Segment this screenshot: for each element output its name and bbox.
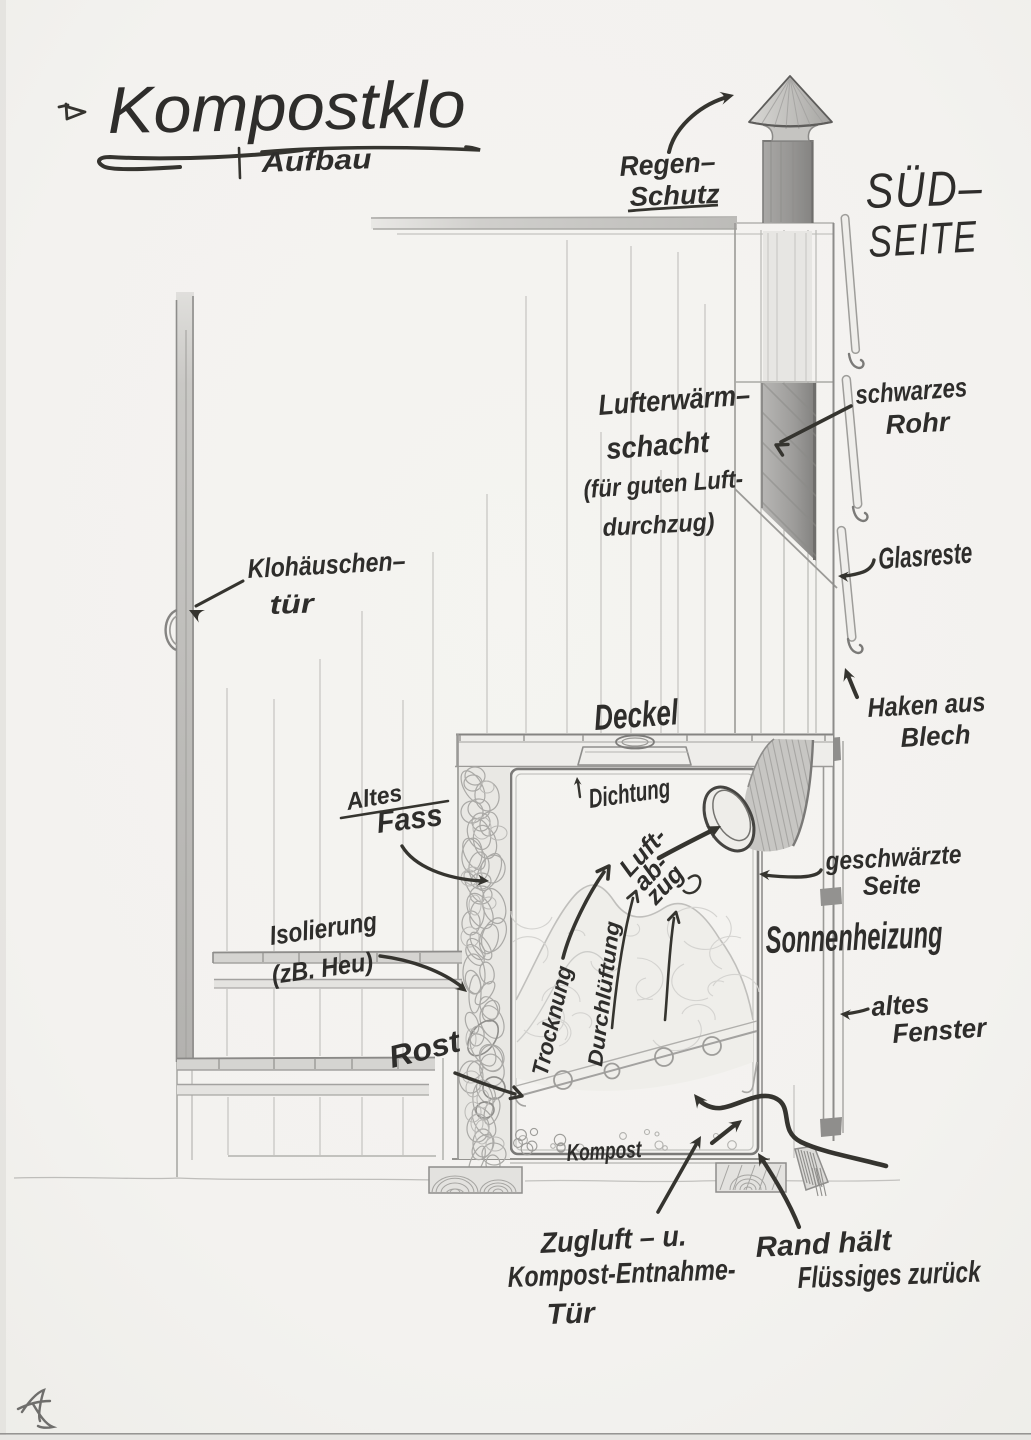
svg-text:durchzug): durchzug): [602, 508, 715, 542]
svg-text:Haken aus: Haken aus: [867, 687, 986, 723]
svg-text:Kompost: Kompost: [566, 1136, 643, 1167]
svg-text:Rohr: Rohr: [885, 407, 952, 440]
svg-text:Seite: Seite: [862, 869, 921, 901]
svg-text:Blech: Blech: [900, 719, 971, 753]
svg-text:Aufbau: Aufbau: [260, 143, 372, 178]
svg-text:SÜD–: SÜD–: [864, 161, 984, 219]
svg-text:Sonnenheizung: Sonnenheizung: [765, 914, 943, 962]
svg-text:Deckel: Deckel: [593, 691, 680, 738]
svg-text:Flüssiges zurück: Flüssiges zurück: [797, 1256, 982, 1295]
svg-text:SEITE: SEITE: [867, 212, 979, 267]
svg-text:Glasreste: Glasreste: [877, 537, 973, 576]
svg-text:Kompostklo: Kompostklo: [107, 67, 466, 147]
svg-text:Tür: Tür: [546, 1297, 597, 1331]
svg-text:tür: tür: [269, 588, 316, 620]
